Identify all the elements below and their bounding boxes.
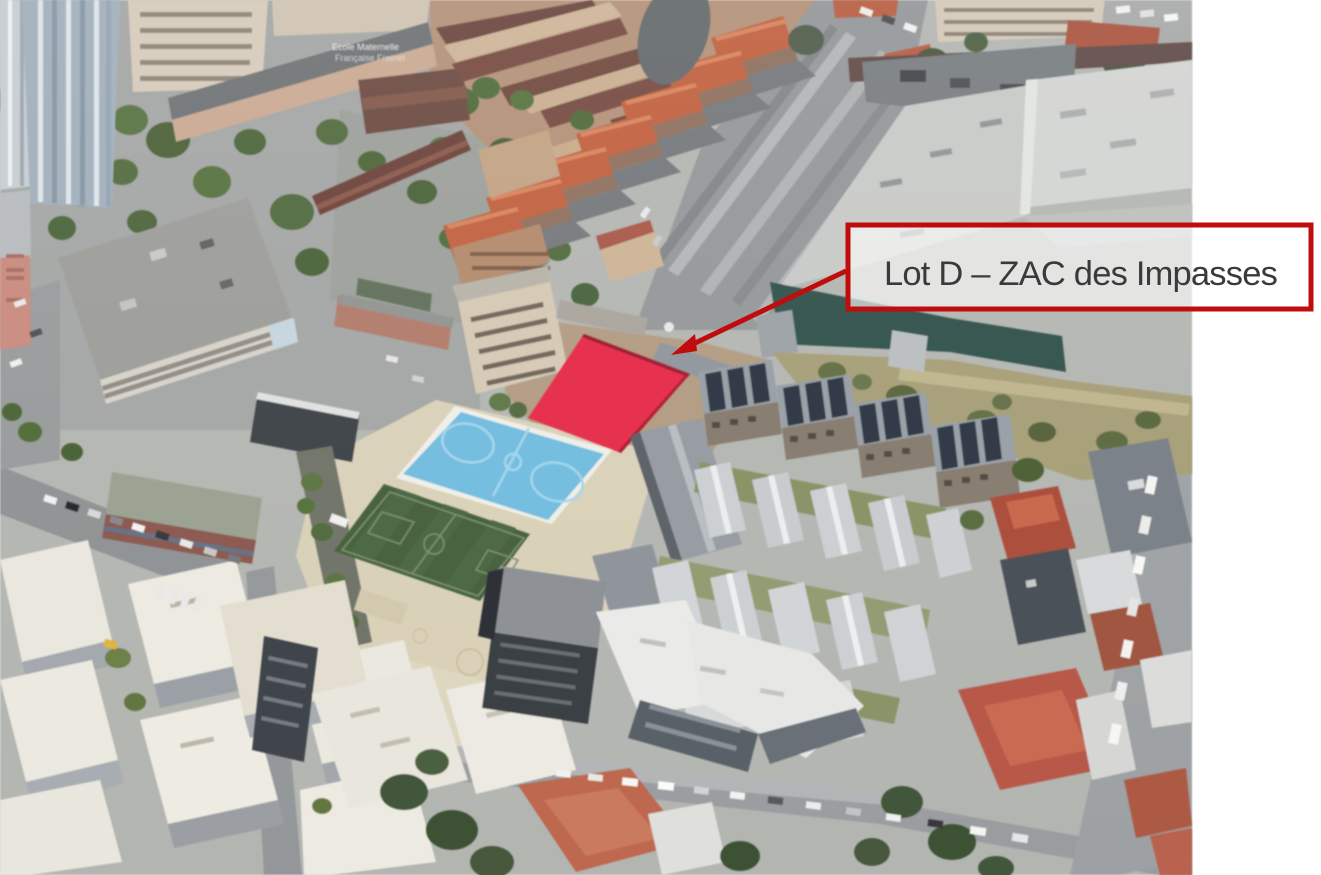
svg-text:Ecole Maternelle: Ecole Maternelle xyxy=(332,42,399,52)
svg-text:Lot D – ZAC des Impasses: Lot D – ZAC des Impasses xyxy=(884,255,1277,293)
svg-text:Française Freinet: Française Freinet xyxy=(335,53,406,63)
